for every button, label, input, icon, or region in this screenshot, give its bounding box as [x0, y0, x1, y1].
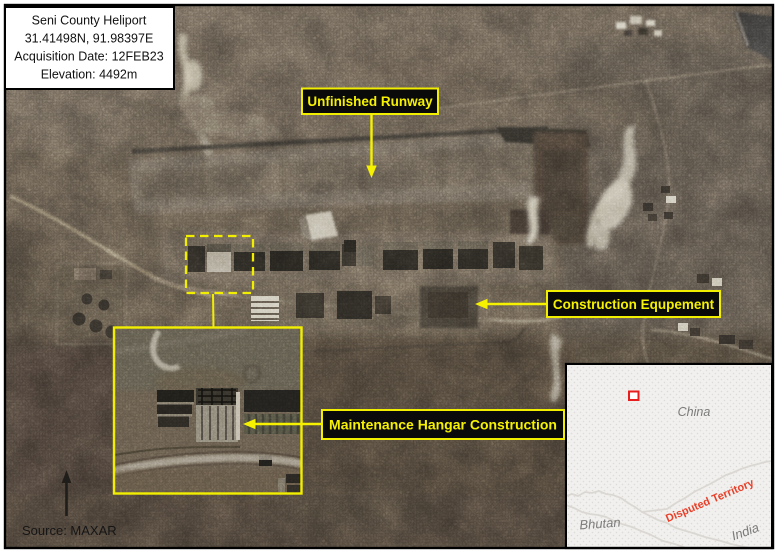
svg-text:Elevation: 4492m: Elevation: 4492m: [41, 68, 138, 82]
svg-text:Construction Equpement: Construction Equpement: [553, 297, 715, 312]
svg-text:China: China: [678, 405, 711, 419]
svg-text:Source: MAXAR: Source: MAXAR: [22, 523, 117, 538]
svg-text:Bhutan: Bhutan: [579, 515, 621, 533]
svg-text:31.41498N, 91.98397E: 31.41498N, 91.98397E: [25, 32, 154, 46]
svg-text:Unfinished Runway: Unfinished Runway: [307, 94, 433, 109]
svg-text:Acquisition Date: 12FEB23: Acquisition Date: 12FEB23: [14, 50, 163, 64]
svg-text:Seni County Heliport: Seni County Heliport: [32, 14, 147, 28]
svg-text:Maintenance Hangar Constructio: Maintenance Hangar Construction: [329, 417, 557, 433]
